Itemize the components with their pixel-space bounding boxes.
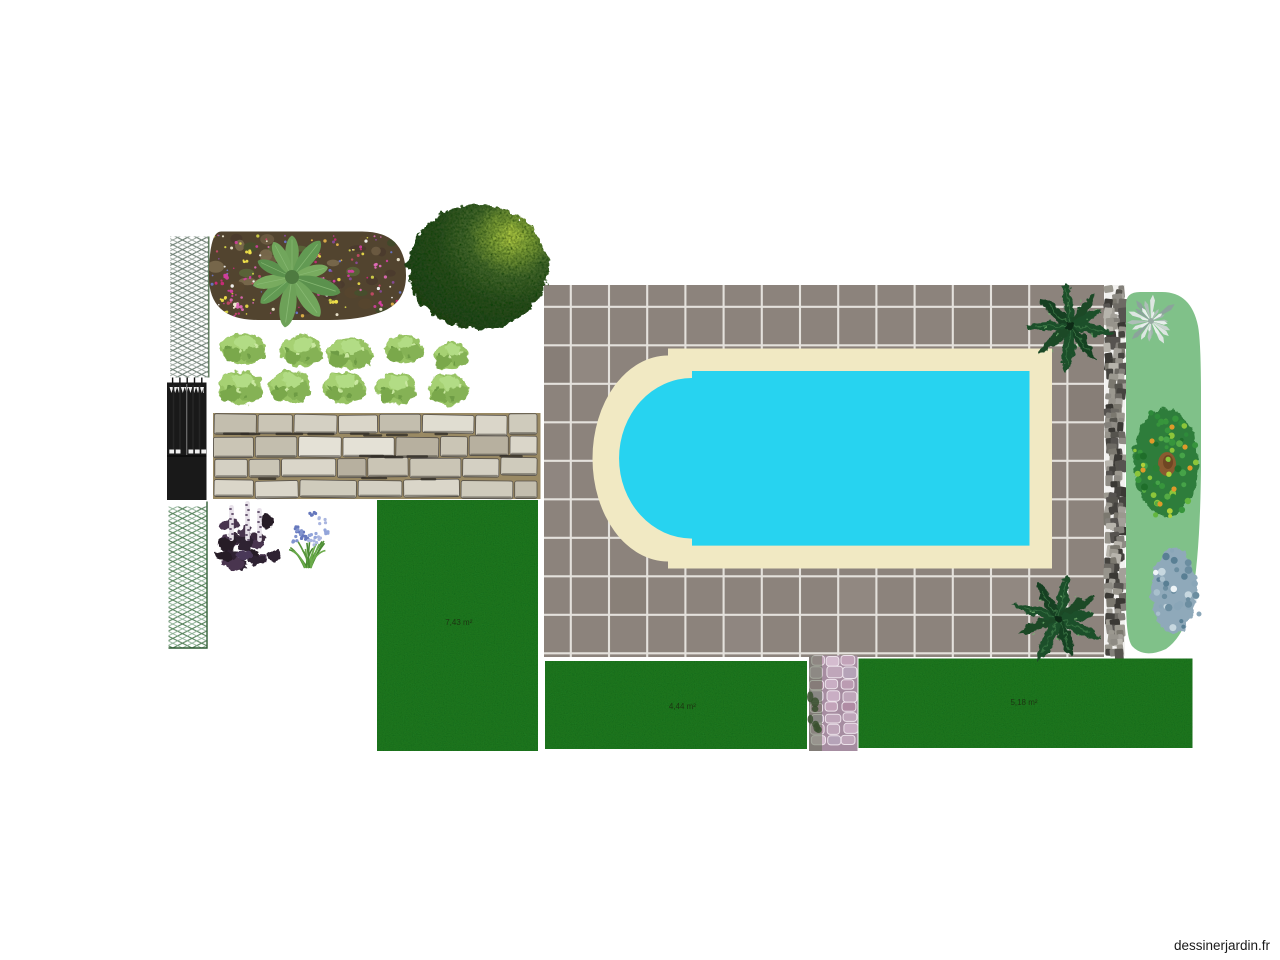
svg-text:4,44 m²: 4,44 m² xyxy=(669,702,696,711)
svg-text:7,43 m²: 7,43 m² xyxy=(445,618,472,627)
svg-text:dessinerjardin.fr: dessinerjardin.fr xyxy=(1174,938,1271,953)
svg-text:5,18 m²: 5,18 m² xyxy=(1010,698,1037,707)
